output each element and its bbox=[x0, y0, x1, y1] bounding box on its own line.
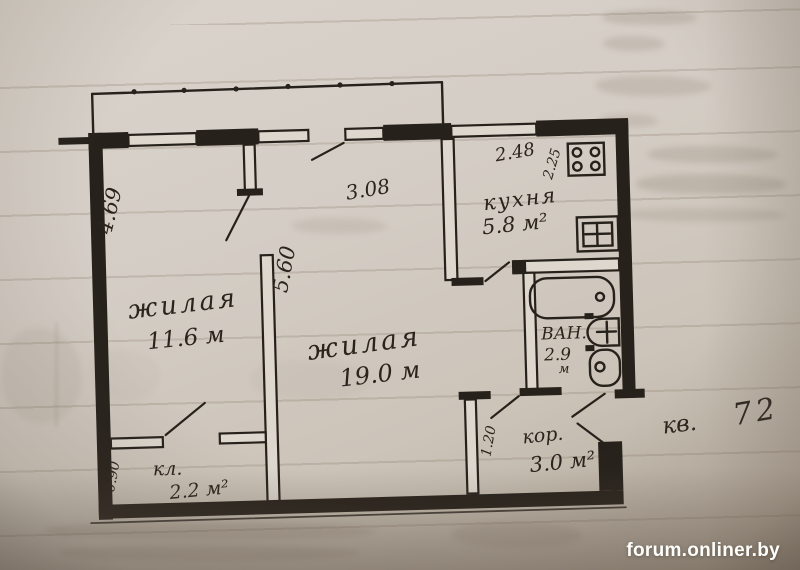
photo-of-floor-plan: жилая 11.6 м жилая 19.0 м кухня 5.8 м² В… bbox=[0, 0, 800, 570]
watermark: forum.onliner.by bbox=[626, 540, 780, 562]
photo-vignette bbox=[0, 0, 800, 570]
